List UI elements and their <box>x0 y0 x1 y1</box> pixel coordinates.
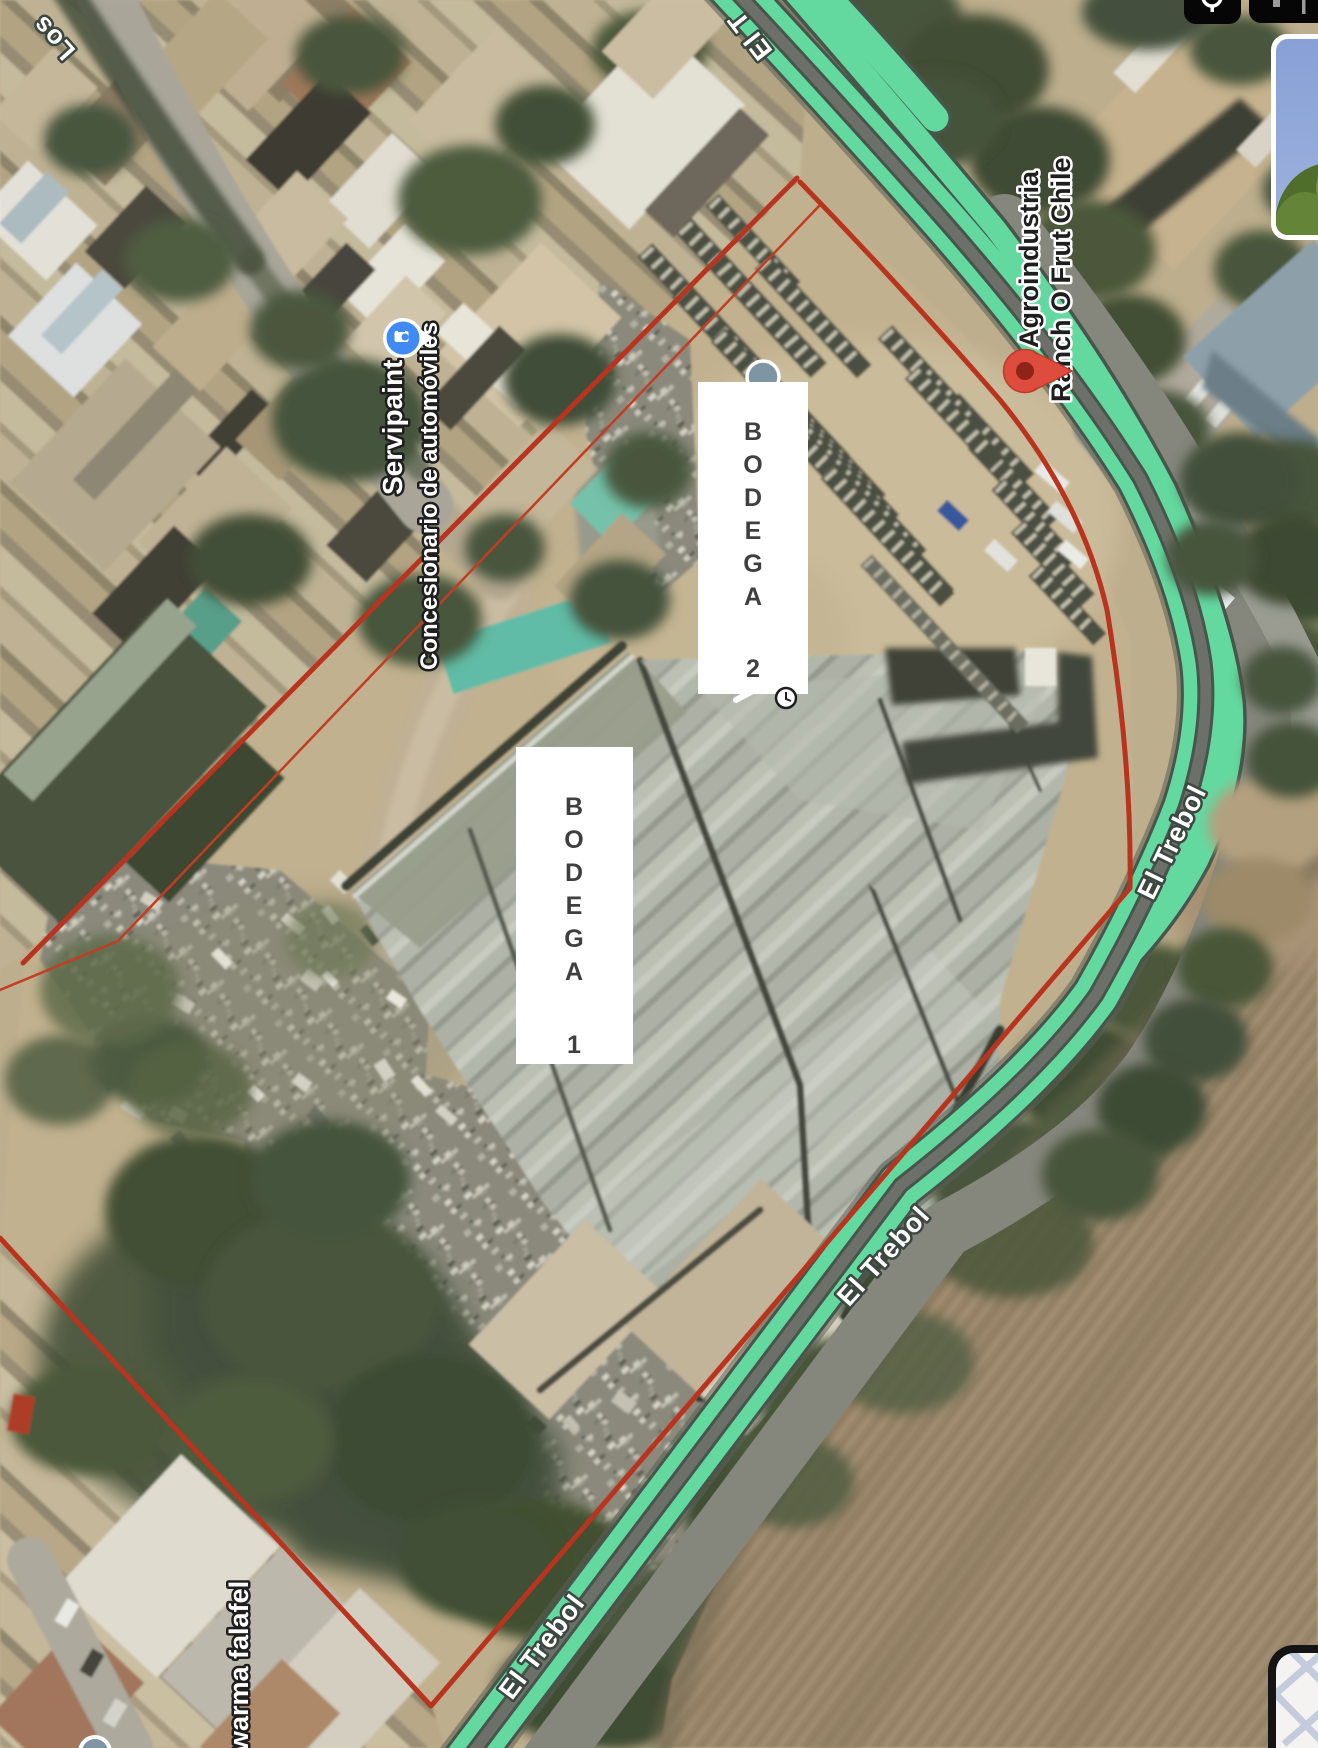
svg-text:Concesionario de automóviles: Concesionario de automóviles <box>416 322 443 670</box>
svg-text:G: G <box>743 550 762 578</box>
svg-text:E: E <box>745 517 762 545</box>
svg-text:G: G <box>564 925 583 953</box>
svg-text:D: D <box>744 484 762 512</box>
svg-text:Agroindustria: Agroindustria <box>1014 170 1044 348</box>
svg-text:A: A <box>744 583 762 611</box>
svg-text:2: 2 <box>746 655 760 683</box>
svg-text:B: B <box>744 418 762 446</box>
svg-text:1: 1 <box>567 1031 581 1059</box>
svg-text:Servipaint: Servipaint <box>377 360 408 495</box>
svg-text:warma falafel: warma falafel <box>224 1581 254 1748</box>
svg-text:B: B <box>565 793 583 821</box>
svg-text:E: E <box>566 892 583 920</box>
svg-text:O: O <box>743 451 762 479</box>
svg-text:O: O <box>564 826 583 854</box>
svg-text:D: D <box>565 859 583 887</box>
svg-text:A: A <box>565 958 583 986</box>
